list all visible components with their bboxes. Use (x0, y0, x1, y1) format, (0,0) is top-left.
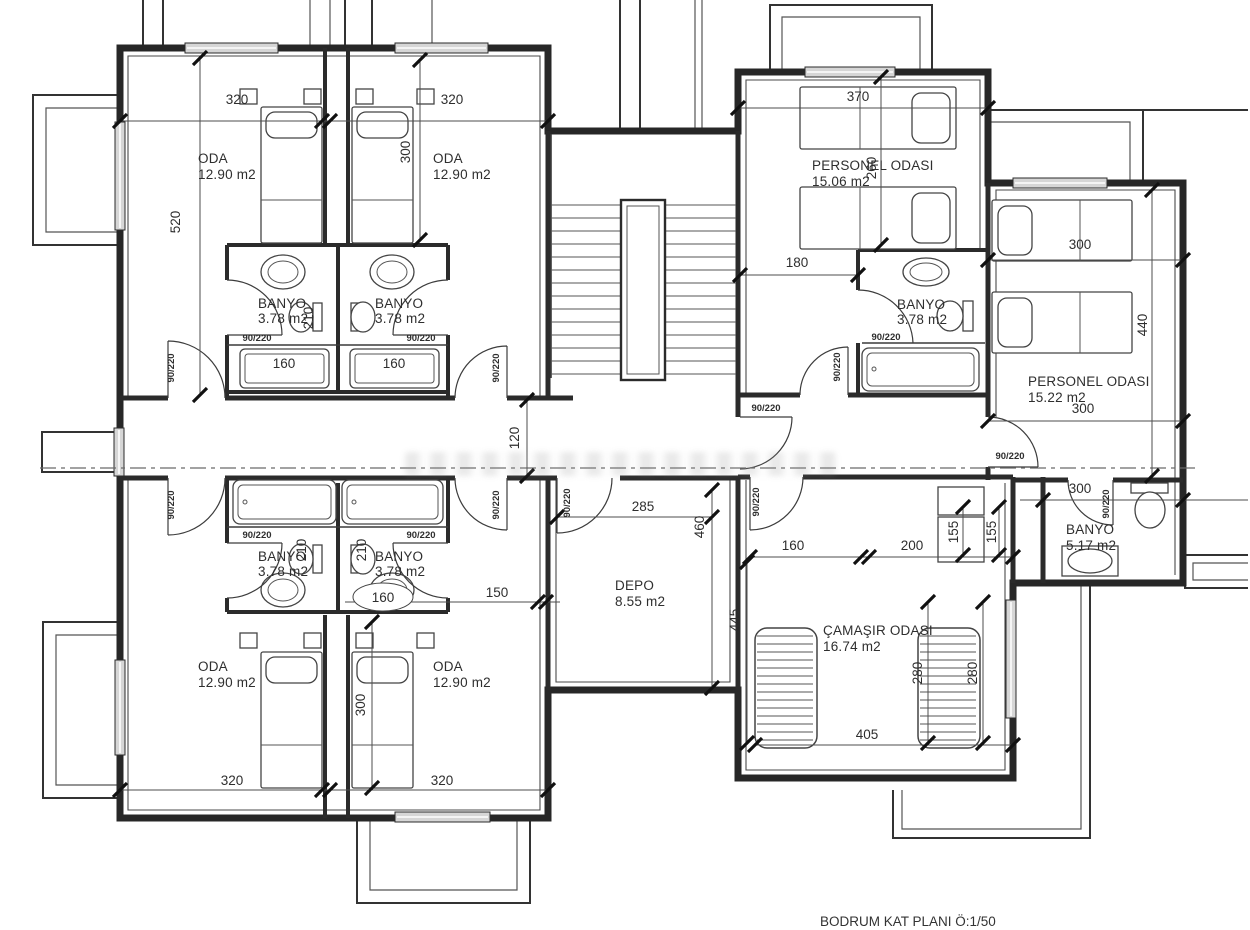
dim-label: 520 (168, 211, 183, 234)
door-size-label: 90/220 (1101, 489, 1112, 518)
sink-icon (903, 258, 949, 286)
room-area: 5.17 m2 (1066, 538, 1116, 553)
toilet-icon (351, 302, 375, 332)
dim-label: 285 (632, 499, 655, 514)
door-size-label: 90/220 (166, 353, 177, 382)
door-size-label: 90/220 (871, 332, 900, 343)
door-size-label: 90/220 (166, 490, 177, 519)
door-size-label: 90/220 (751, 403, 780, 414)
door-size-label: 90/220 (491, 353, 502, 382)
dim-label: 300 (353, 694, 368, 717)
room-name: BANYO (258, 296, 306, 311)
room-area: 12.90 m2 (198, 675, 256, 690)
room-area: 12.90 m2 (433, 675, 491, 690)
washing-machine-icon (755, 628, 817, 748)
floor-plan-page: ODA 12.90 m2 ODA 12.90 m2 BANYO 3.78 m2 … (0, 0, 1250, 930)
dim-label: 320 (431, 773, 454, 788)
room-name: ODA (198, 151, 228, 166)
door-size-label: 90/220 (242, 530, 271, 541)
room-name: ODA (433, 659, 463, 674)
dim-label: 150 (486, 585, 509, 600)
dim-label: 370 (847, 89, 870, 104)
room-area: 3.78 m2 (258, 564, 308, 579)
washing-machine-icon (918, 628, 980, 748)
room-area: 12.90 m2 (198, 167, 256, 182)
door-size-label: 90/220 (406, 530, 435, 541)
door-size-label: 90/220 (491, 490, 502, 519)
dim-label: 445 (727, 609, 742, 632)
room-name: DEPO (615, 578, 654, 593)
room-name: ÇAMAŞIR ODASI (823, 623, 933, 638)
door-size-label: 90/220 (406, 333, 435, 344)
bed-single (800, 187, 956, 249)
room-area: 8.55 m2 (615, 594, 665, 609)
dim-label: 300 (1072, 401, 1095, 416)
door-size-label: 90/220 (562, 488, 573, 517)
door-size-label: 90/220 (751, 487, 762, 516)
dim-label: 460 (692, 516, 707, 539)
dim-label: 160 (383, 356, 406, 371)
dim-label: 210 (301, 307, 316, 330)
dim-label: 300 (1069, 237, 1092, 252)
bed-single (800, 87, 956, 149)
dim-label: 160 (782, 538, 805, 553)
sink-icon (261, 255, 305, 289)
plan-title: BODRUM KAT PLANI Ö:1/50 (820, 914, 996, 929)
watermark (405, 452, 837, 476)
dim-label: 300 (398, 141, 413, 164)
dim-label: 320 (441, 92, 464, 107)
dim-label: 120 (507, 427, 522, 450)
duct-shaft (938, 487, 984, 562)
dim-label: 210 (354, 539, 369, 562)
dim-label: 160 (372, 590, 395, 605)
room-name: BANYO (1066, 522, 1114, 537)
dim-label: 440 (1135, 314, 1150, 337)
dim-label: 320 (226, 92, 249, 107)
dim-label: 280 (965, 662, 980, 685)
room-area: 15.06 m2 (812, 174, 870, 189)
dim-label: 155 (946, 521, 961, 544)
room-area: 3.78 m2 (375, 311, 425, 326)
door-size-label: 90/220 (242, 333, 271, 344)
door-size-label: 90/220 (995, 451, 1024, 462)
stair-landing-wall (621, 200, 665, 380)
room-area: 16.74 m2 (823, 639, 881, 654)
room-name: BANYO (375, 296, 423, 311)
door-size-label: 90/220 (832, 352, 843, 381)
room-name: ODA (433, 151, 463, 166)
room-name: BANYO (375, 549, 423, 564)
room-name: ODA (198, 659, 228, 674)
dim-label: 160 (273, 356, 296, 371)
room-area: 3.78 m2 (897, 312, 947, 327)
dim-label: 300 (1069, 481, 1092, 496)
dim-label: 200 (901, 538, 924, 553)
bed-single (992, 200, 1132, 261)
dim-label: 155 (984, 521, 999, 544)
room-name: PERSONEL ODASI (1028, 374, 1150, 389)
dim-label: 405 (856, 727, 879, 742)
dim-label: 260 (864, 157, 879, 180)
bathtub-icon (342, 480, 443, 524)
sink-icon (370, 255, 414, 289)
dim-label: 320 (221, 773, 244, 788)
bathtub-icon (233, 480, 336, 524)
room-name: BANYO (897, 297, 945, 312)
room-area: 12.90 m2 (433, 167, 491, 182)
bathtub-icon (862, 348, 979, 391)
bed-single (992, 292, 1132, 353)
dim-label: 210 (294, 539, 309, 562)
dim-label: 180 (786, 255, 809, 270)
room-area: 3.78 m2 (375, 564, 425, 579)
dim-label: 280 (910, 662, 925, 685)
